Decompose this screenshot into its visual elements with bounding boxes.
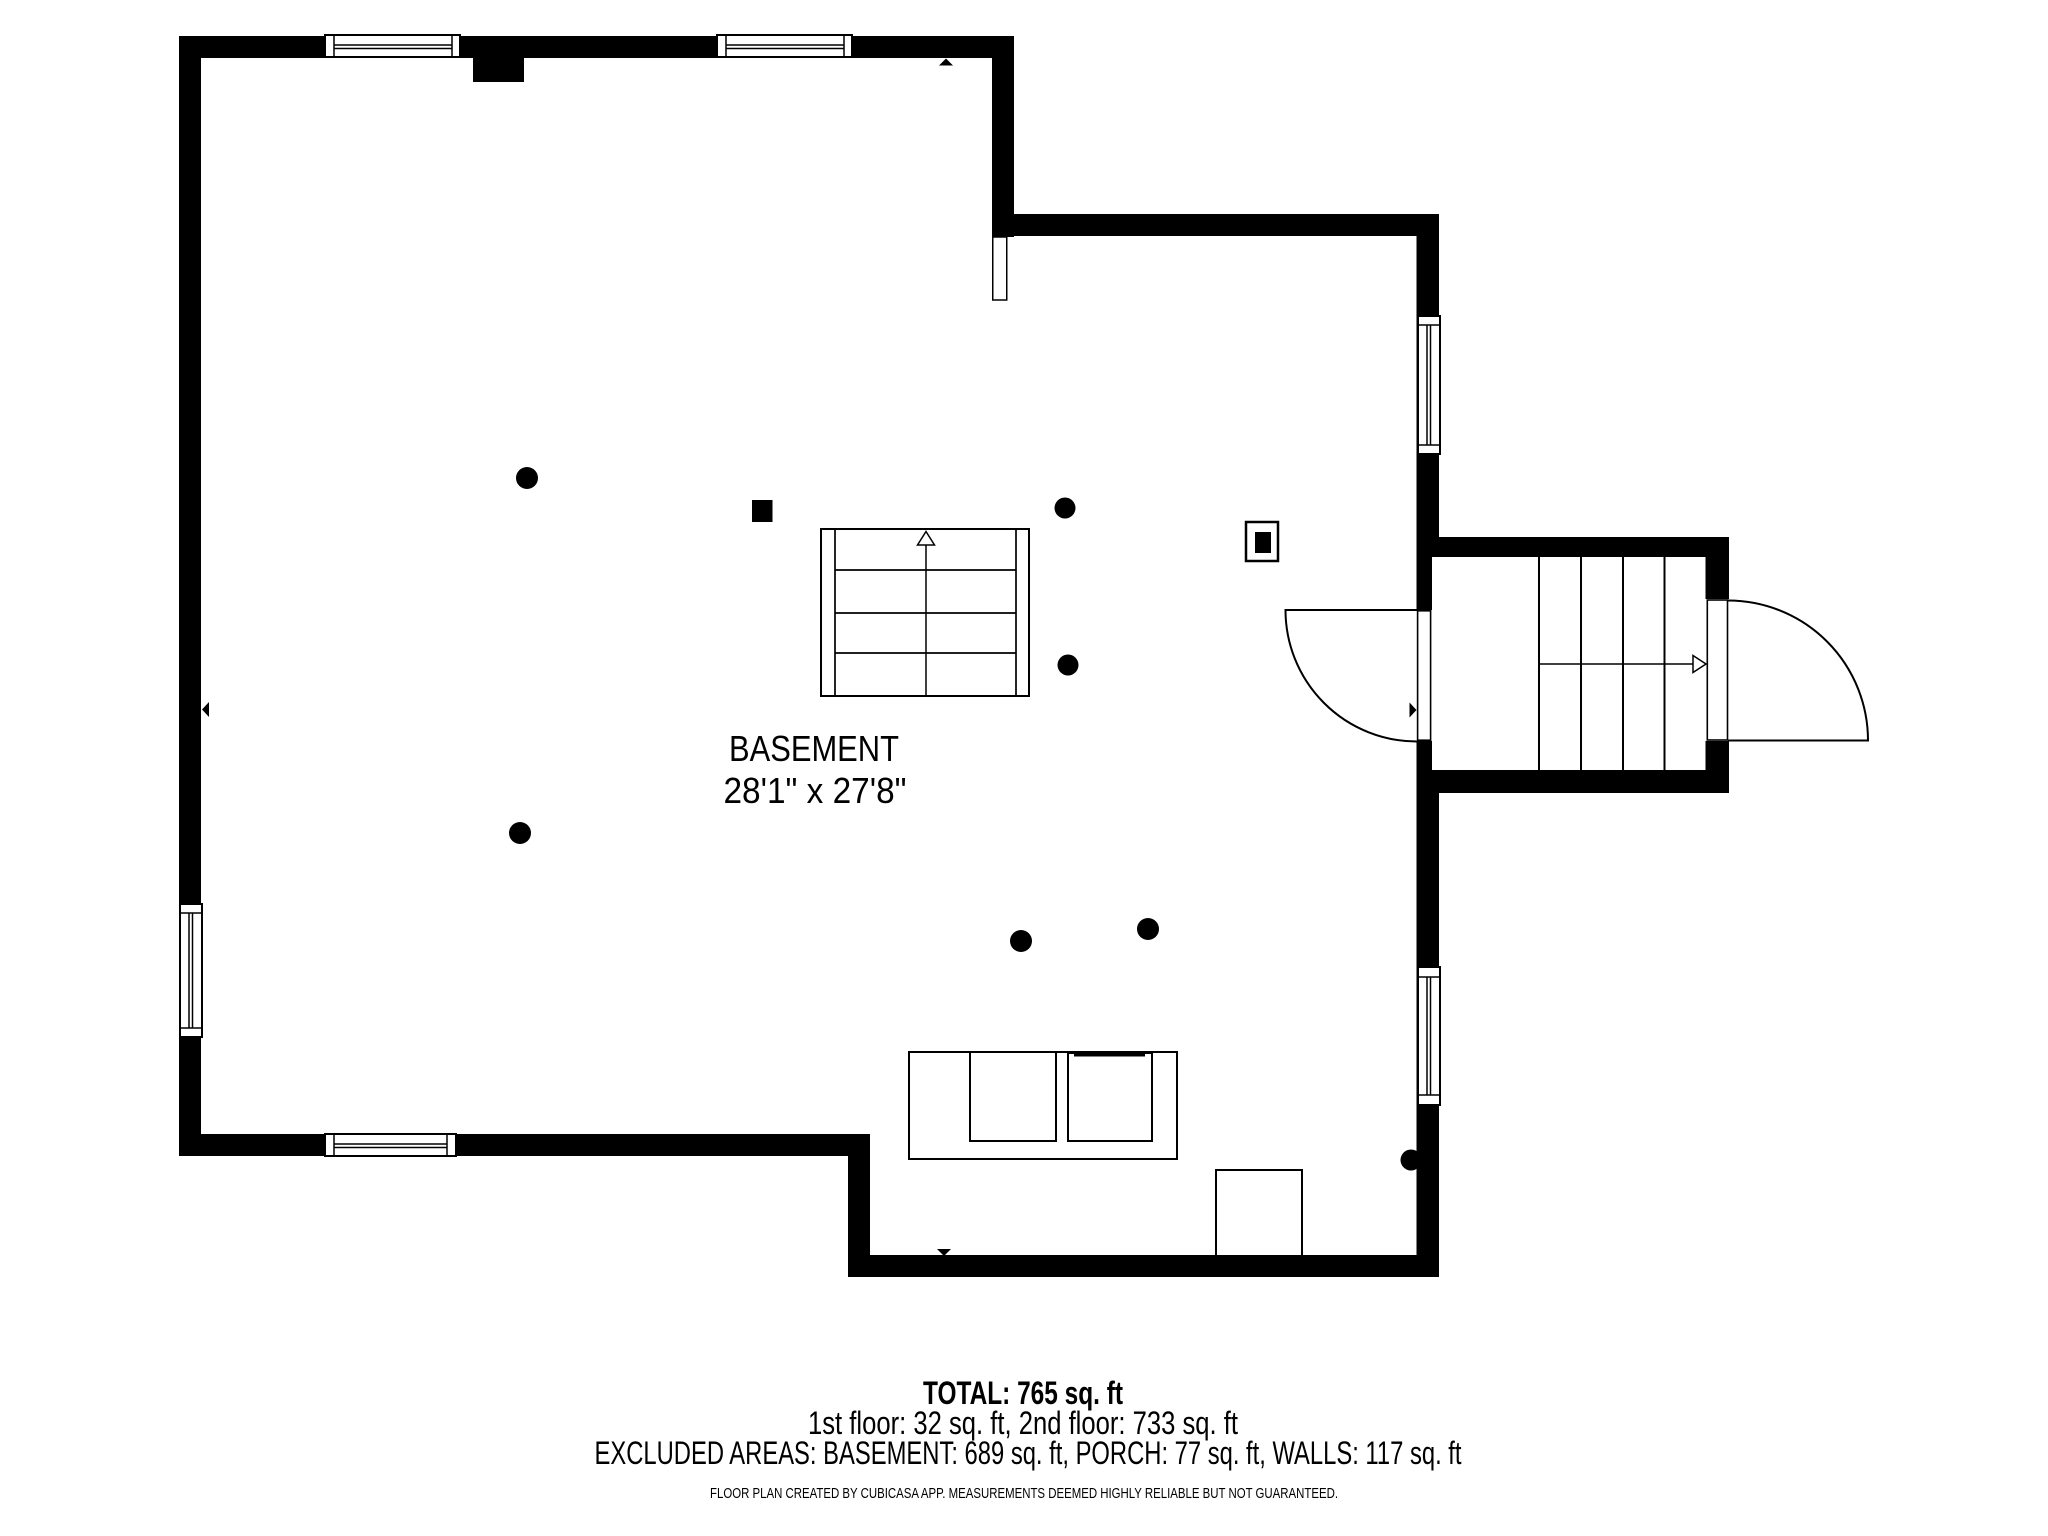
svg-text:BASEMENT: BASEMENT [729,728,899,769]
svg-text:EXCLUDED AREAS: BASEMENT: 689: EXCLUDED AREAS: BASEMENT: 689 sq. ft, PO… [595,1435,1462,1471]
svg-text:FLOOR PLAN CREATED BY CUBICASA: FLOOR PLAN CREATED BY CUBICASA APP. MEAS… [710,1486,1338,1502]
svg-text:28'1" x 27'8": 28'1" x 27'8" [724,770,907,811]
